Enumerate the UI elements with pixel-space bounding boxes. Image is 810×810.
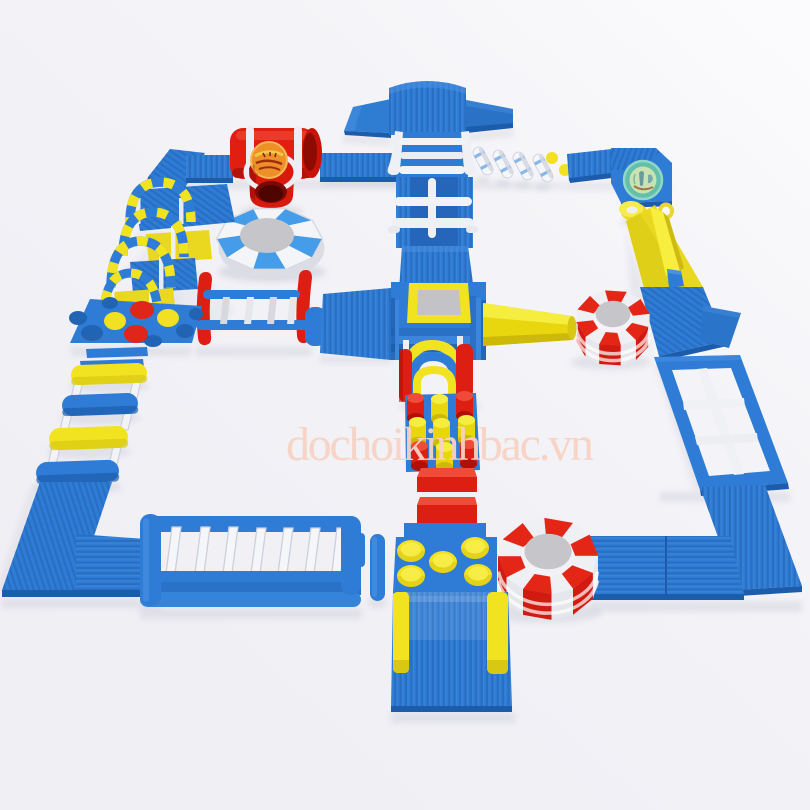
svg-text:dochoikinhbac.vn: dochoikinhbac.vn	[286, 418, 594, 471]
